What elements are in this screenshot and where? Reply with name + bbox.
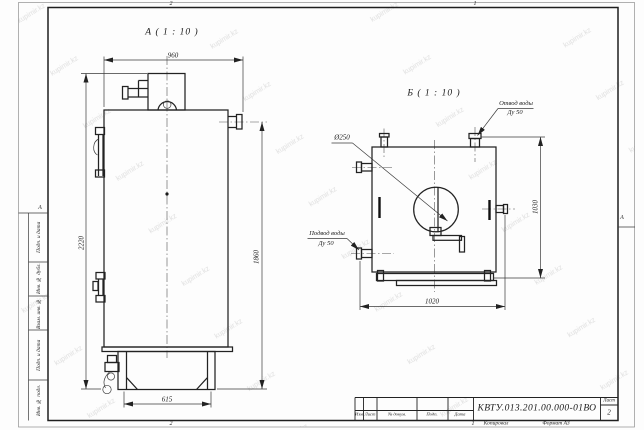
sheet-cell-number: 2 (607, 410, 611, 417)
dim-outlet-height: 1860 (254, 250, 261, 264)
strip-cell-inv-orig: Инв. № подл. (29, 380, 49, 420)
inlet-label-line1: Подвод воды (309, 231, 345, 238)
doc-number: КВТУ.013.201.00.000-01ВО (478, 404, 597, 414)
zone-number-top-right: 1 (474, 1, 477, 7)
tb-col-izm: Изм (355, 413, 363, 418)
zone-letter-right: А (620, 215, 624, 221)
tb-col-data: Дата (455, 413, 466, 418)
outlet-label-line1: Отвод воды (499, 101, 533, 108)
strip-cell-sign-date-1: Подп. и дата (29, 213, 49, 262)
tb-col-list: Лист (365, 413, 376, 418)
zone-letter-left: А (38, 205, 42, 211)
sheet-cell-label: Лист (603, 399, 615, 404)
zone-number-bottom-right: 1 (472, 421, 475, 427)
view-a-title: А ( 1 : 10 ) (145, 28, 198, 38)
inlet-label-line2: Ду 50 (318, 241, 333, 248)
zone-number-top-left: 2 (170, 1, 173, 7)
tb-col-podp: Подп. (426, 413, 437, 418)
dim-top-width: 960 (168, 53, 179, 60)
watermark-layer (18, 2, 635, 427)
dim-rear-width: 1020 (425, 299, 439, 306)
strip-cell-repl-inv: Взам. инв. № (29, 296, 49, 330)
drawing-canvas: kupimir.kz (0, 0, 644, 430)
dim-base-width: 615 (162, 397, 173, 404)
strip-cell-sign-date-2: Подп. и дата (29, 330, 49, 380)
strip-cell-inv-dupl: Инв. № дубл. (29, 262, 49, 296)
dim-flue-diameter: Ø250 (334, 135, 350, 142)
dim-overall-height: 2220 (79, 236, 86, 250)
view-b-title: Б ( 1 : 10 ) (407, 89, 460, 99)
tb-col-ndokum: № докум. (388, 413, 406, 418)
zone-number-bottom-left: 2 (170, 421, 173, 427)
outlet-label-line2: Ду 50 (507, 110, 522, 117)
drawing-sheet: kupimir.kz (0, 0, 644, 430)
dim-rear-height: 1030 (533, 200, 540, 214)
level-point-marker (165, 192, 168, 195)
format-label: Формат А3 (542, 421, 569, 427)
copied-label: Копировал (484, 421, 509, 427)
